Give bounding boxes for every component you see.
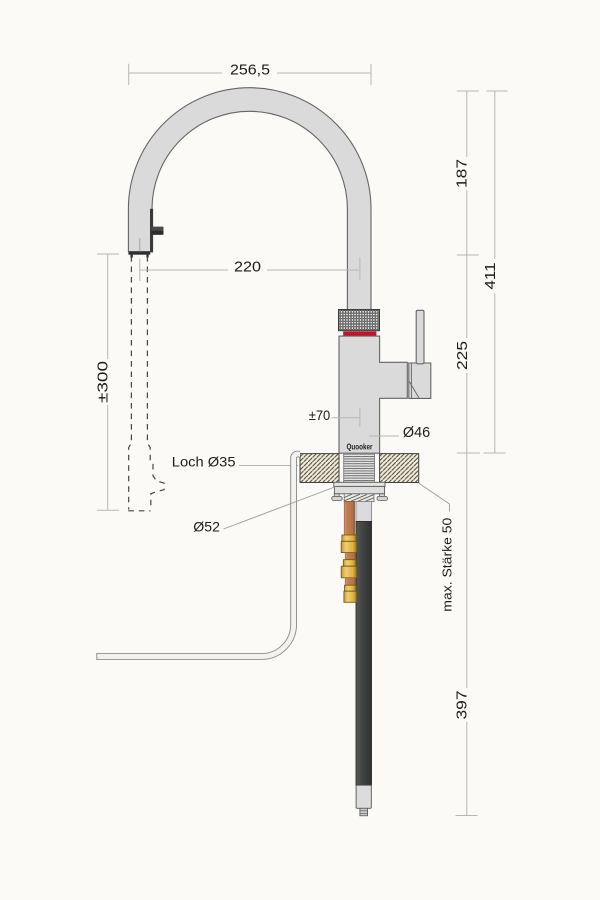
svg-text:411: 411 [482, 263, 499, 290]
svg-text:±70: ±70 [309, 407, 331, 423]
svg-text:Loch Ø35: Loch Ø35 [172, 455, 236, 470]
svg-text:Ø52: Ø52 [193, 519, 220, 535]
svg-text:220: 220 [234, 259, 261, 276]
svg-text:256,5: 256,5 [230, 61, 270, 78]
svg-text:max. Stärke 50: max. Stärke 50 [440, 518, 455, 612]
svg-text:225: 225 [454, 341, 471, 370]
svg-text:±300: ±300 [95, 361, 112, 403]
svg-text:397: 397 [454, 691, 471, 720]
svg-text:187: 187 [454, 159, 471, 188]
svg-text:Quooker: Quooker [347, 442, 373, 451]
svg-text:Ø46: Ø46 [403, 424, 430, 441]
